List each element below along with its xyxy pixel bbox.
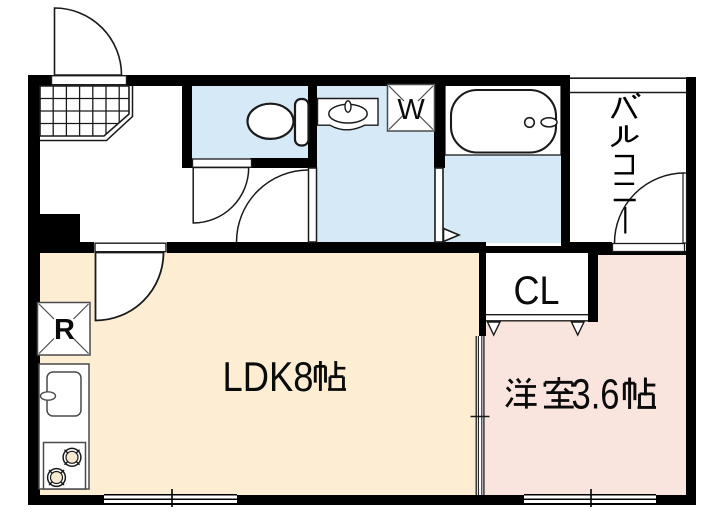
svg-text:3.6: 3.6 xyxy=(572,371,620,419)
svg-text:CL: CL xyxy=(514,269,560,313)
svg-text:R: R xyxy=(54,314,75,346)
svg-text:W: W xyxy=(397,94,425,126)
svg-text:LDK8: LDK8 xyxy=(223,353,314,400)
